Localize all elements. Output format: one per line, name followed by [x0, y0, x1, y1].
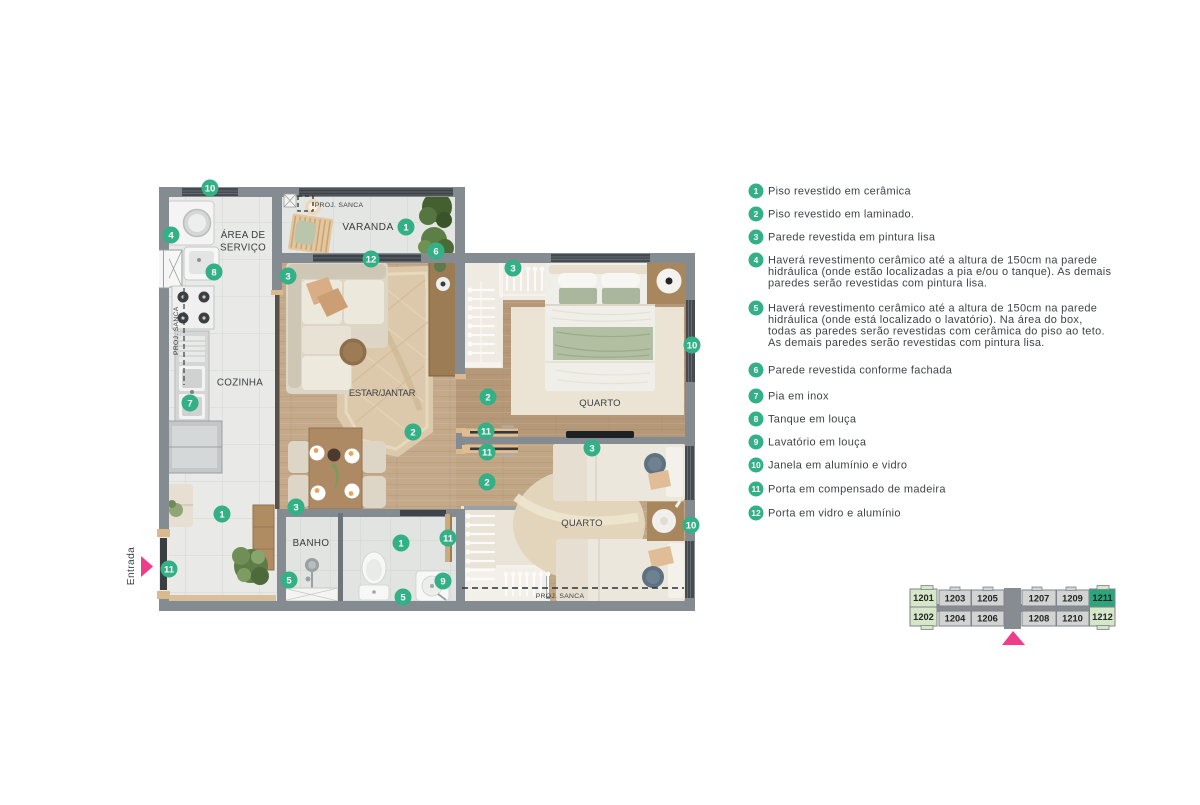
- svg-text:11: 11: [164, 565, 175, 576]
- svg-text:Porta em vidro e alumínio: Porta em vidro e alumínio: [768, 508, 901, 520]
- svg-text:paredes serão revestidas com p: paredes serão revestidas com pintura lis…: [768, 278, 987, 290]
- svg-text:1209: 1209: [1062, 594, 1083, 604]
- svg-text:7: 7: [754, 391, 759, 401]
- svg-text:3: 3: [293, 503, 298, 514]
- svg-text:11: 11: [443, 534, 454, 545]
- svg-text:PROJ. SANCA: PROJ. SANCA: [315, 202, 364, 209]
- svg-text:7: 7: [187, 399, 192, 410]
- svg-text:8: 8: [211, 268, 216, 279]
- svg-text:As demais paredes serão revest: As demais paredes serão revestidas com p…: [768, 337, 1045, 349]
- svg-text:5: 5: [754, 303, 759, 313]
- svg-text:QUARTO: QUARTO: [579, 398, 621, 409]
- svg-text:PROJ. SANCA: PROJ. SANCA: [536, 593, 585, 600]
- svg-text:5: 5: [286, 576, 292, 587]
- svg-text:1206: 1206: [977, 614, 998, 624]
- svg-text:1201: 1201: [913, 593, 934, 603]
- svg-text:Parede revestida conforme fach: Parede revestida conforme fachada: [768, 365, 953, 377]
- svg-text:Lavatório em louça: Lavatório em louça: [768, 437, 867, 449]
- svg-text:9: 9: [440, 577, 445, 588]
- svg-text:ÁREA DE: ÁREA DE: [221, 230, 266, 241]
- svg-text:1208: 1208: [1029, 614, 1050, 624]
- svg-text:6: 6: [433, 247, 438, 258]
- svg-text:1: 1: [754, 186, 759, 196]
- svg-text:Piso revestido em cerâmica: Piso revestido em cerâmica: [768, 186, 911, 198]
- svg-text:2: 2: [484, 478, 489, 489]
- svg-text:Janela em alumínio e vidro: Janela em alumínio e vidro: [768, 460, 907, 472]
- svg-text:6: 6: [754, 365, 759, 375]
- svg-text:SERVIÇO: SERVIÇO: [220, 243, 266, 254]
- svg-text:8: 8: [754, 414, 759, 424]
- svg-text:1202: 1202: [913, 612, 934, 622]
- svg-text:10: 10: [686, 521, 697, 532]
- svg-text:Porta em compensado de madeira: Porta em compensado de madeira: [768, 484, 946, 496]
- svg-text:3: 3: [754, 232, 759, 242]
- svg-text:10: 10: [751, 460, 761, 470]
- svg-text:1210: 1210: [1062, 614, 1083, 624]
- svg-text:hidráulica (onde está localiza: hidráulica (onde está localizado o lavat…: [768, 314, 1083, 326]
- svg-text:12: 12: [751, 508, 761, 518]
- svg-text:Haverá revestimento cerâmico a: Haverá revestimento cerâmico até a altur…: [768, 255, 1097, 267]
- svg-text:1207: 1207: [1029, 594, 1050, 604]
- svg-text:1: 1: [398, 539, 404, 550]
- svg-text:Tanque em louça: Tanque em louça: [768, 414, 857, 426]
- svg-text:1204: 1204: [945, 614, 967, 624]
- svg-text:11: 11: [752, 484, 761, 494]
- svg-text:BANHO: BANHO: [293, 538, 330, 549]
- svg-text:3: 3: [510, 264, 515, 275]
- svg-text:5: 5: [400, 593, 406, 604]
- svg-text:1: 1: [219, 510, 225, 521]
- svg-text:12: 12: [366, 255, 377, 266]
- svg-text:1: 1: [403, 223, 409, 234]
- svg-text:1211: 1211: [1092, 593, 1112, 603]
- svg-text:9: 9: [754, 437, 759, 447]
- svg-text:PROJ. SANCA: PROJ. SANCA: [173, 306, 180, 355]
- svg-text:10: 10: [205, 184, 216, 195]
- svg-text:3: 3: [285, 272, 290, 283]
- svg-text:2: 2: [754, 209, 759, 219]
- svg-text:11: 11: [481, 427, 492, 438]
- svg-text:Entrada: Entrada: [126, 547, 137, 585]
- svg-text:1203: 1203: [945, 594, 966, 604]
- svg-text:2: 2: [410, 428, 415, 439]
- svg-text:Parede revestida em pintura li: Parede revestida em pintura lisa: [768, 232, 936, 244]
- svg-text:2: 2: [485, 393, 490, 404]
- svg-text:1205: 1205: [977, 594, 998, 604]
- svg-text:QUARTO: QUARTO: [561, 518, 603, 529]
- svg-text:Pia em inox: Pia em inox: [768, 391, 829, 403]
- svg-text:11: 11: [482, 448, 493, 459]
- svg-text:4: 4: [754, 255, 759, 265]
- svg-text:3: 3: [589, 444, 594, 455]
- svg-text:VARANDA: VARANDA: [342, 222, 393, 233]
- svg-text:hidráulica (onde estão localiz: hidráulica (onde estão localizadas a pia…: [768, 266, 1111, 278]
- svg-text:4: 4: [168, 231, 174, 242]
- svg-text:Piso revestido em laminado.: Piso revestido em laminado.: [768, 209, 914, 221]
- svg-text:Haverá revestimento cerâmico a: Haverá revestimento cerâmico até a altur…: [768, 303, 1097, 315]
- svg-text:todas as paredes serão revesti: todas as paredes serão revestidas com ce…: [768, 326, 1105, 338]
- svg-text:COZINHA: COZINHA: [217, 378, 263, 389]
- svg-text:10: 10: [687, 341, 698, 352]
- svg-text:ESTAR/JANTAR: ESTAR/JANTAR: [349, 388, 416, 399]
- svg-text:1212: 1212: [1092, 612, 1113, 622]
